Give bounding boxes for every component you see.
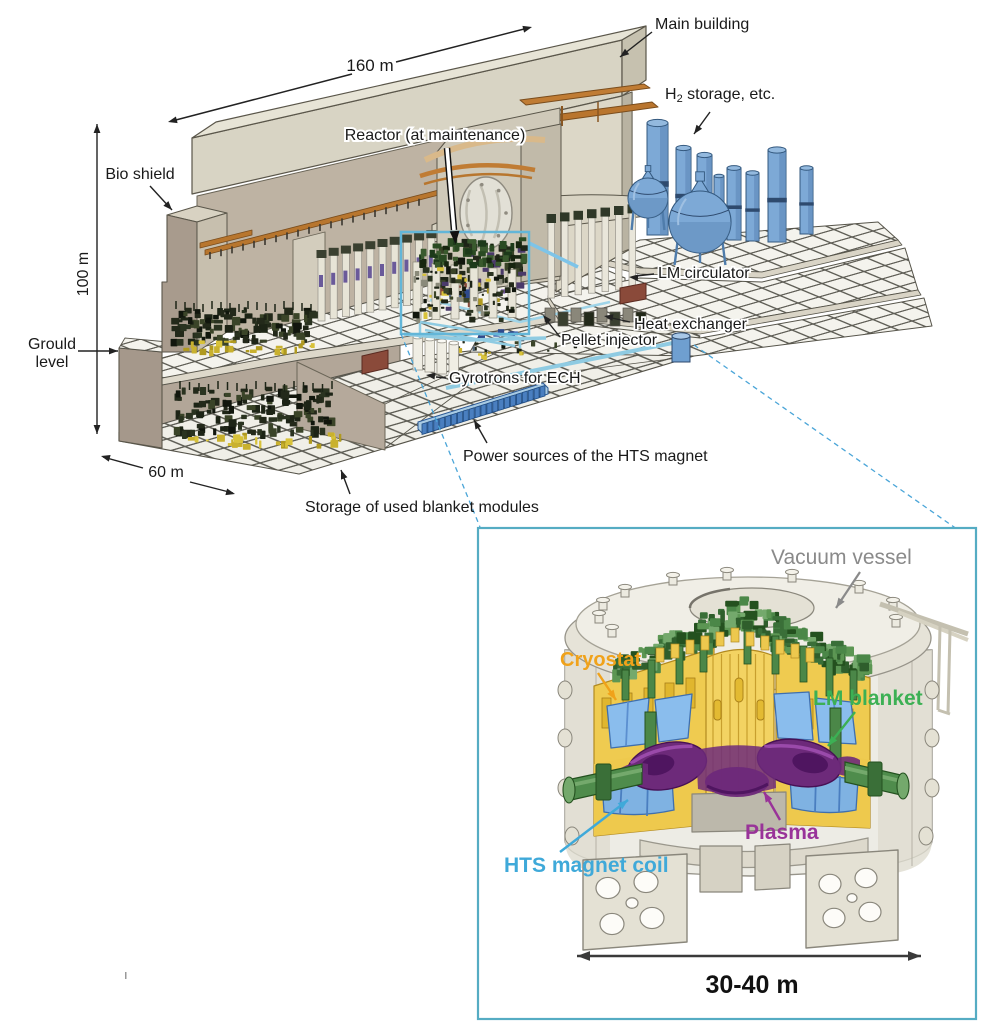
svg-text:Reactor (at maintenance): Reactor (at maintenance): [345, 127, 526, 144]
svg-text:HTS magnet coil: HTS magnet coil: [504, 854, 669, 877]
svg-text:60 m: 60 m: [148, 464, 184, 481]
svg-text:160 m: 160 m: [346, 56, 393, 75]
svg-text:30-40 m: 30-40 m: [705, 971, 798, 999]
svg-text:Bio shield: Bio shield: [105, 166, 174, 183]
svg-text:Grould: Grould: [28, 336, 76, 353]
svg-text:Main building: Main building: [655, 16, 749, 33]
svg-text:Heat exchanger: Heat exchanger: [634, 316, 748, 333]
svg-text:Pellet injector: Pellet injector: [561, 332, 658, 349]
svg-text:Gyrotrons for ECH: Gyrotrons for ECH: [449, 370, 581, 387]
svg-text:level: level: [36, 354, 69, 371]
svg-text:Power sources of the HTS magne: Power sources of the HTS magnet: [463, 448, 708, 465]
svg-text:LM blanket: LM blanket: [813, 687, 923, 710]
svg-text:Cryostat: Cryostat: [560, 649, 641, 671]
svg-text:Storage of used blanket module: Storage of used blanket modules: [305, 499, 539, 516]
svg-text:Vacuum vessel: Vacuum vessel: [771, 546, 912, 569]
svg-text:100 m: 100 m: [75, 252, 92, 296]
svg-text:LM circulator: LM circulator: [658, 265, 750, 282]
svg-text:Plasma: Plasma: [745, 821, 819, 844]
